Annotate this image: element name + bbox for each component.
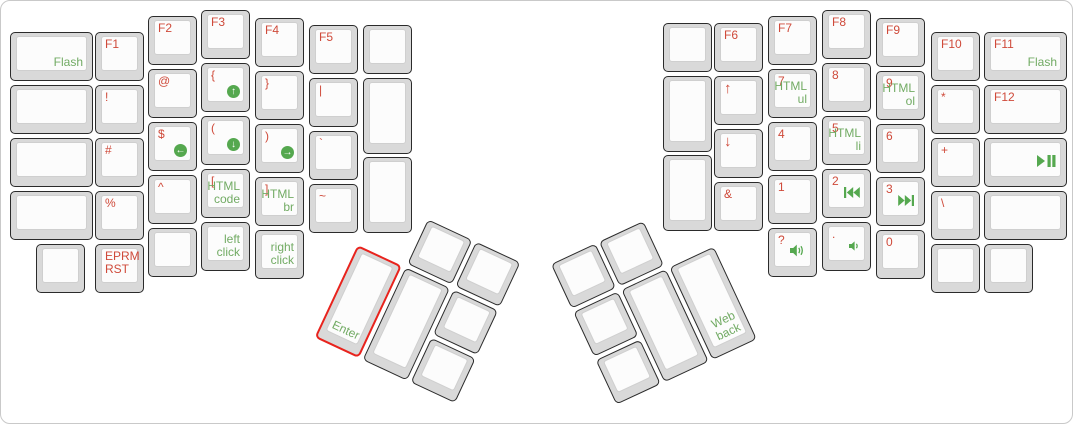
key-blank-r6[interactable] (984, 244, 1033, 293)
key-blank-l5[interactable] (148, 228, 197, 277)
key-blank-l6[interactable] (363, 25, 412, 74)
prev-track-icon (844, 185, 860, 203)
scroll-right-circle-icon: → (281, 146, 294, 159)
key-blank-l3-surface (16, 195, 87, 230)
keyboard-layout-canvas: EnterWeb backFlashF1!#%EPRM RSTF2@$←^F3{… (0, 0, 1073, 424)
key-up-arrow[interactable]: ↑ (714, 76, 763, 125)
volume-down-icon (849, 238, 860, 256)
key-rbrace-red-legend: } (265, 77, 269, 90)
key-f11-flash[interactable]: F11Flash (984, 32, 1067, 81)
key-lparen-scroll-down[interactable]: (↓ (201, 116, 250, 165)
key-4[interactable]: 4 (768, 122, 817, 171)
key-blank-l4-surface (42, 248, 79, 283)
key-up-arrow-surface: ↑ (720, 80, 757, 115)
key-f3-red-legend: F3 (211, 16, 225, 29)
key-0[interactable]: 0 (876, 230, 925, 279)
key-blank-r1-surface (669, 27, 706, 62)
scroll-up-circle-icon: ↑ (227, 85, 240, 98)
key-f4-surface: F4 (261, 22, 298, 57)
key-thumb-r-blank5-surface (603, 346, 651, 393)
key-flash-green-legend: Flash (54, 56, 83, 69)
key-backtick-surface: ` (315, 135, 352, 170)
key-lbracket-html-code-green-legend: HTML code (207, 180, 240, 206)
key-7-html-ul[interactable]: 7HTML ul (768, 69, 817, 118)
key-8-surface: 8 (828, 67, 865, 102)
key-blank-r4-surface (937, 248, 974, 283)
key-7-html-ul-green-legend: HTML ul (774, 80, 807, 106)
key-f6-surface: F6 (720, 27, 757, 62)
key-blank-l8-surface (369, 161, 406, 223)
key-backslash-surface: \ (937, 195, 974, 230)
key-blank-r4[interactable] (931, 244, 980, 293)
key-blank-r1[interactable] (663, 23, 712, 72)
key-at[interactable]: @ (148, 69, 197, 118)
key-3-next-track[interactable]: 3 (876, 177, 925, 226)
key-rbrace-surface: } (261, 75, 298, 110)
key-caret-surface: ^ (154, 179, 191, 214)
key-dollar-scroll-left-red-legend: $ (158, 128, 165, 141)
key-blank-l7-surface (369, 82, 406, 144)
key-play-pause[interactable] (984, 138, 1067, 187)
key-rbracket-html-br[interactable]: ]HTML br (255, 177, 304, 226)
key-7-html-ul-red-legend: 7 (778, 75, 785, 88)
key-2-prev-track[interactable]: 2 (822, 169, 871, 218)
key-1-red-legend: 1 (778, 181, 785, 194)
play-pause-icon (1037, 154, 1056, 172)
key-asterisk[interactable]: * (931, 85, 980, 134)
key-5-html-li-surface: 5HTML li (828, 120, 865, 155)
key-blank-l6-surface (369, 29, 406, 64)
key-left-click-surface: left click (207, 226, 244, 261)
key-exclamation-surface: ! (101, 89, 138, 124)
key-enter-green-legend: Enter (330, 319, 361, 343)
key-backslash-red-legend: \ (941, 197, 944, 210)
key-right-click-green-legend: right click (271, 241, 294, 267)
key-f8-red-legend: F8 (832, 16, 846, 29)
key-f1[interactable]: F1 (95, 32, 144, 81)
key-f6[interactable]: F6 (714, 23, 763, 72)
key-9-html-ol-red-legend: 9 (886, 77, 893, 90)
key-right-click-surface: right click (261, 234, 298, 269)
key-lbrace-scroll-up-red-legend: { (211, 69, 215, 82)
key-dollar-scroll-left[interactable]: $← (148, 122, 197, 171)
key-thumb-r-blank1-surface (606, 227, 654, 274)
key-f4[interactable]: F4 (255, 18, 304, 67)
key-rbracket-html-br-surface: ]HTML br (261, 181, 298, 216)
key-ampersand[interactable]: & (714, 182, 763, 231)
key-plus-red-legend: + (941, 144, 948, 157)
key-1-surface: 1 (774, 179, 811, 214)
key-f5-red-legend: F5 (319, 31, 333, 44)
key-blank-r3[interactable] (663, 155, 712, 231)
key-question-volume-up[interactable]: ? (768, 228, 817, 277)
key-f4-red-legend: F4 (265, 24, 279, 37)
key-eprm-rst[interactable]: EPRM RST (95, 244, 144, 293)
key-thumb-l-blank2-surface (465, 248, 513, 295)
key-2-prev-track-surface: 2 (828, 173, 865, 208)
key-thumb-r-blank4-surface (580, 298, 628, 345)
key-backtick[interactable]: ` (309, 131, 358, 180)
key-thumb-r-blank2-surface (558, 250, 606, 297)
key-rbracket-html-br-red-legend: ] (265, 183, 268, 196)
key-pipe[interactable]: | (309, 78, 358, 127)
key-blank-l5-surface (154, 232, 191, 267)
key-5-html-li[interactable]: 5HTML li (822, 116, 871, 165)
key-right-click[interactable]: right click (255, 230, 304, 279)
key-asterisk-surface: * (937, 89, 974, 124)
key-blank-l8[interactable] (363, 157, 412, 233)
key-f3[interactable]: F3 (201, 10, 250, 59)
key-backslash[interactable]: \ (931, 191, 980, 240)
key-flash-surface: Flash (16, 36, 87, 71)
key-5-html-li-green-legend: HTML li (828, 127, 861, 153)
key-percent-surface: % (101, 195, 138, 230)
key-dot-volume-down-red-legend: . (832, 228, 835, 241)
key-ampersand-surface: & (720, 186, 757, 221)
key-blank-l4[interactable] (36, 244, 85, 293)
key-lbracket-html-code-red-legend: [ (211, 175, 214, 188)
key-asterisk-red-legend: * (941, 91, 946, 104)
key-f2[interactable]: F2 (148, 16, 197, 65)
key-f10-red-legend: F10 (941, 38, 962, 51)
key-f8-surface: F8 (828, 14, 865, 49)
key-lbracket-html-code-surface: [HTML code (207, 173, 244, 208)
key-f12-surface: F12 (990, 89, 1061, 124)
key-f5-surface: F5 (315, 29, 352, 64)
key-at-red-legend: @ (158, 75, 170, 88)
key-0-surface: 0 (882, 234, 919, 269)
key-plus[interactable]: + (931, 138, 980, 187)
key-caret-red-legend: ^ (158, 181, 164, 194)
key-f10-surface: F10 (937, 36, 974, 71)
key-f9-surface: F9 (882, 22, 919, 57)
key-9-html-ol-green-legend: HTML ol (882, 82, 915, 108)
key-f11-flash-green-legend: Flash (1028, 56, 1057, 69)
key-blank-r2[interactable] (663, 76, 712, 152)
key-7-html-ul-surface: 7HTML ul (774, 73, 811, 108)
key-exclamation-red-legend: ! (105, 91, 108, 104)
key-4-surface: 4 (774, 126, 811, 161)
key-rparen-scroll-right[interactable]: )→ (255, 124, 304, 173)
key-eprm-rst-red-legend: EPRM RST (105, 250, 140, 276)
key-8[interactable]: 8 (822, 63, 871, 112)
key-f2-surface: F2 (154, 20, 191, 55)
key-web-back-green-legend: Web back (709, 309, 743, 343)
key-backtick-red-legend: ` (319, 137, 323, 150)
key-3-next-track-surface: 3 (882, 181, 919, 216)
key-lbrace-scroll-up[interactable]: {↑ (201, 63, 250, 112)
key-f6-red-legend: F6 (724, 29, 738, 42)
key-f12-red-legend: F12 (994, 91, 1015, 104)
key-lbracket-html-code[interactable]: [HTML code (201, 169, 250, 218)
key-thumb-l-blank4-surface (443, 296, 491, 343)
key-blank-l1-surface (16, 89, 87, 124)
key-f3-surface: F3 (207, 14, 244, 49)
key-left-click-green-legend: left click (217, 233, 240, 259)
key-down-arrow-surface: ↓ (720, 133, 757, 168)
key-f12[interactable]: F12 (984, 85, 1067, 134)
key-blank-r6-surface (990, 248, 1027, 283)
key-percent[interactable]: % (95, 191, 144, 240)
key-question-volume-up-surface: ? (774, 232, 811, 267)
key-blank-l1[interactable] (10, 85, 93, 134)
key-f5[interactable]: F5 (309, 25, 358, 74)
key-down-arrow[interactable]: ↓ (714, 129, 763, 178)
key-f7[interactable]: F7 (768, 16, 817, 65)
key-8-red-legend: 8 (832, 69, 839, 82)
key-caret[interactable]: ^ (148, 175, 197, 224)
key-ampersand-red-legend: & (724, 188, 732, 201)
key-rbrace[interactable]: } (255, 71, 304, 120)
key-f7-red-legend: F7 (778, 22, 792, 35)
key-pipe-surface: | (315, 82, 352, 117)
key-at-surface: @ (154, 73, 191, 108)
key-blank-r5-surface (990, 195, 1061, 230)
key-blank-l3[interactable] (10, 191, 93, 240)
key-question-volume-up-red-legend: ? (778, 234, 785, 247)
key-blank-l2[interactable] (10, 138, 93, 187)
key-blank-r2-surface (669, 80, 706, 142)
key-3-next-track-red-legend: 3 (886, 183, 893, 196)
scroll-down-circle-icon: ↓ (227, 138, 240, 151)
key-4-red-legend: 4 (778, 128, 785, 141)
key-f9-red-legend: F9 (886, 24, 900, 37)
key-6[interactable]: 6 (876, 124, 925, 173)
key-play-pause-surface (990, 142, 1061, 177)
key-9-html-ol-surface: 9HTML ol (882, 75, 919, 110)
key-6-red-legend: 6 (886, 130, 893, 143)
key-rparen-scroll-right-red-legend: ) (265, 130, 269, 143)
key-dot-volume-down[interactable]: . (822, 222, 871, 271)
key-6-surface: 6 (882, 128, 919, 163)
next-track-icon (898, 193, 914, 211)
key-rparen-scroll-right-surface: )→ (261, 128, 298, 163)
key-flash[interactable]: Flash (10, 32, 93, 81)
key-pipe-red-legend: | (319, 84, 322, 97)
key-hash-red-legend: # (105, 144, 112, 157)
key-tilde-surface: ~ (315, 188, 352, 223)
key-1[interactable]: 1 (768, 175, 817, 224)
key-5-html-li-red-legend: 5 (832, 122, 839, 135)
key-dot-volume-down-surface: . (828, 226, 865, 261)
key-f1-red-legend: F1 (105, 38, 119, 51)
key-dollar-scroll-left-surface: $← (154, 126, 191, 161)
key-thumb-l-blank5-surface (420, 344, 468, 391)
key-hash-surface: # (101, 142, 138, 177)
key-f8[interactable]: F8 (822, 10, 871, 59)
key-blank-l2-surface (16, 142, 87, 177)
key-plus-surface: + (937, 142, 974, 177)
key-up-arrow-red-legend: ↑ (724, 81, 732, 97)
key-left-click[interactable]: left click (201, 222, 250, 271)
key-lparen-scroll-down-red-legend: ( (211, 122, 215, 135)
key-f2-red-legend: F2 (158, 22, 172, 35)
key-0-red-legend: 0 (886, 236, 893, 249)
key-thumb-l-blank1-surface (417, 226, 465, 273)
key-tilde[interactable]: ~ (309, 184, 358, 233)
key-rbracket-html-br-green-legend: HTML br (261, 188, 294, 214)
volume-up-icon (790, 244, 806, 262)
key-hash[interactable]: # (95, 138, 144, 187)
key-blank-r3-surface (669, 159, 706, 221)
key-f10[interactable]: F10 (931, 32, 980, 81)
key-lbrace-scroll-up-surface: {↑ (207, 67, 244, 102)
key-eprm-rst-surface: EPRM RST (101, 248, 138, 283)
key-tilde-red-legend: ~ (319, 190, 326, 203)
key-f11-flash-red-legend: F11 (994, 38, 1014, 51)
key-percent-red-legend: % (105, 197, 116, 210)
scroll-left-circle-icon: ← (174, 144, 187, 157)
key-f1-surface: F1 (101, 36, 138, 71)
key-f9[interactable]: F9 (876, 18, 925, 67)
key-2-prev-track-red-legend: 2 (832, 175, 839, 188)
key-exclamation[interactable]: ! (95, 85, 144, 134)
key-down-arrow-red-legend: ↓ (724, 134, 732, 150)
key-blank-l7[interactable] (363, 78, 412, 154)
key-blank-r5[interactable] (984, 191, 1067, 240)
key-f11-flash-surface: F11Flash (990, 36, 1061, 71)
key-9-html-ol[interactable]: 9HTML ol (876, 71, 925, 120)
key-f7-surface: F7 (774, 20, 811, 55)
key-lparen-scroll-down-surface: (↓ (207, 120, 244, 155)
